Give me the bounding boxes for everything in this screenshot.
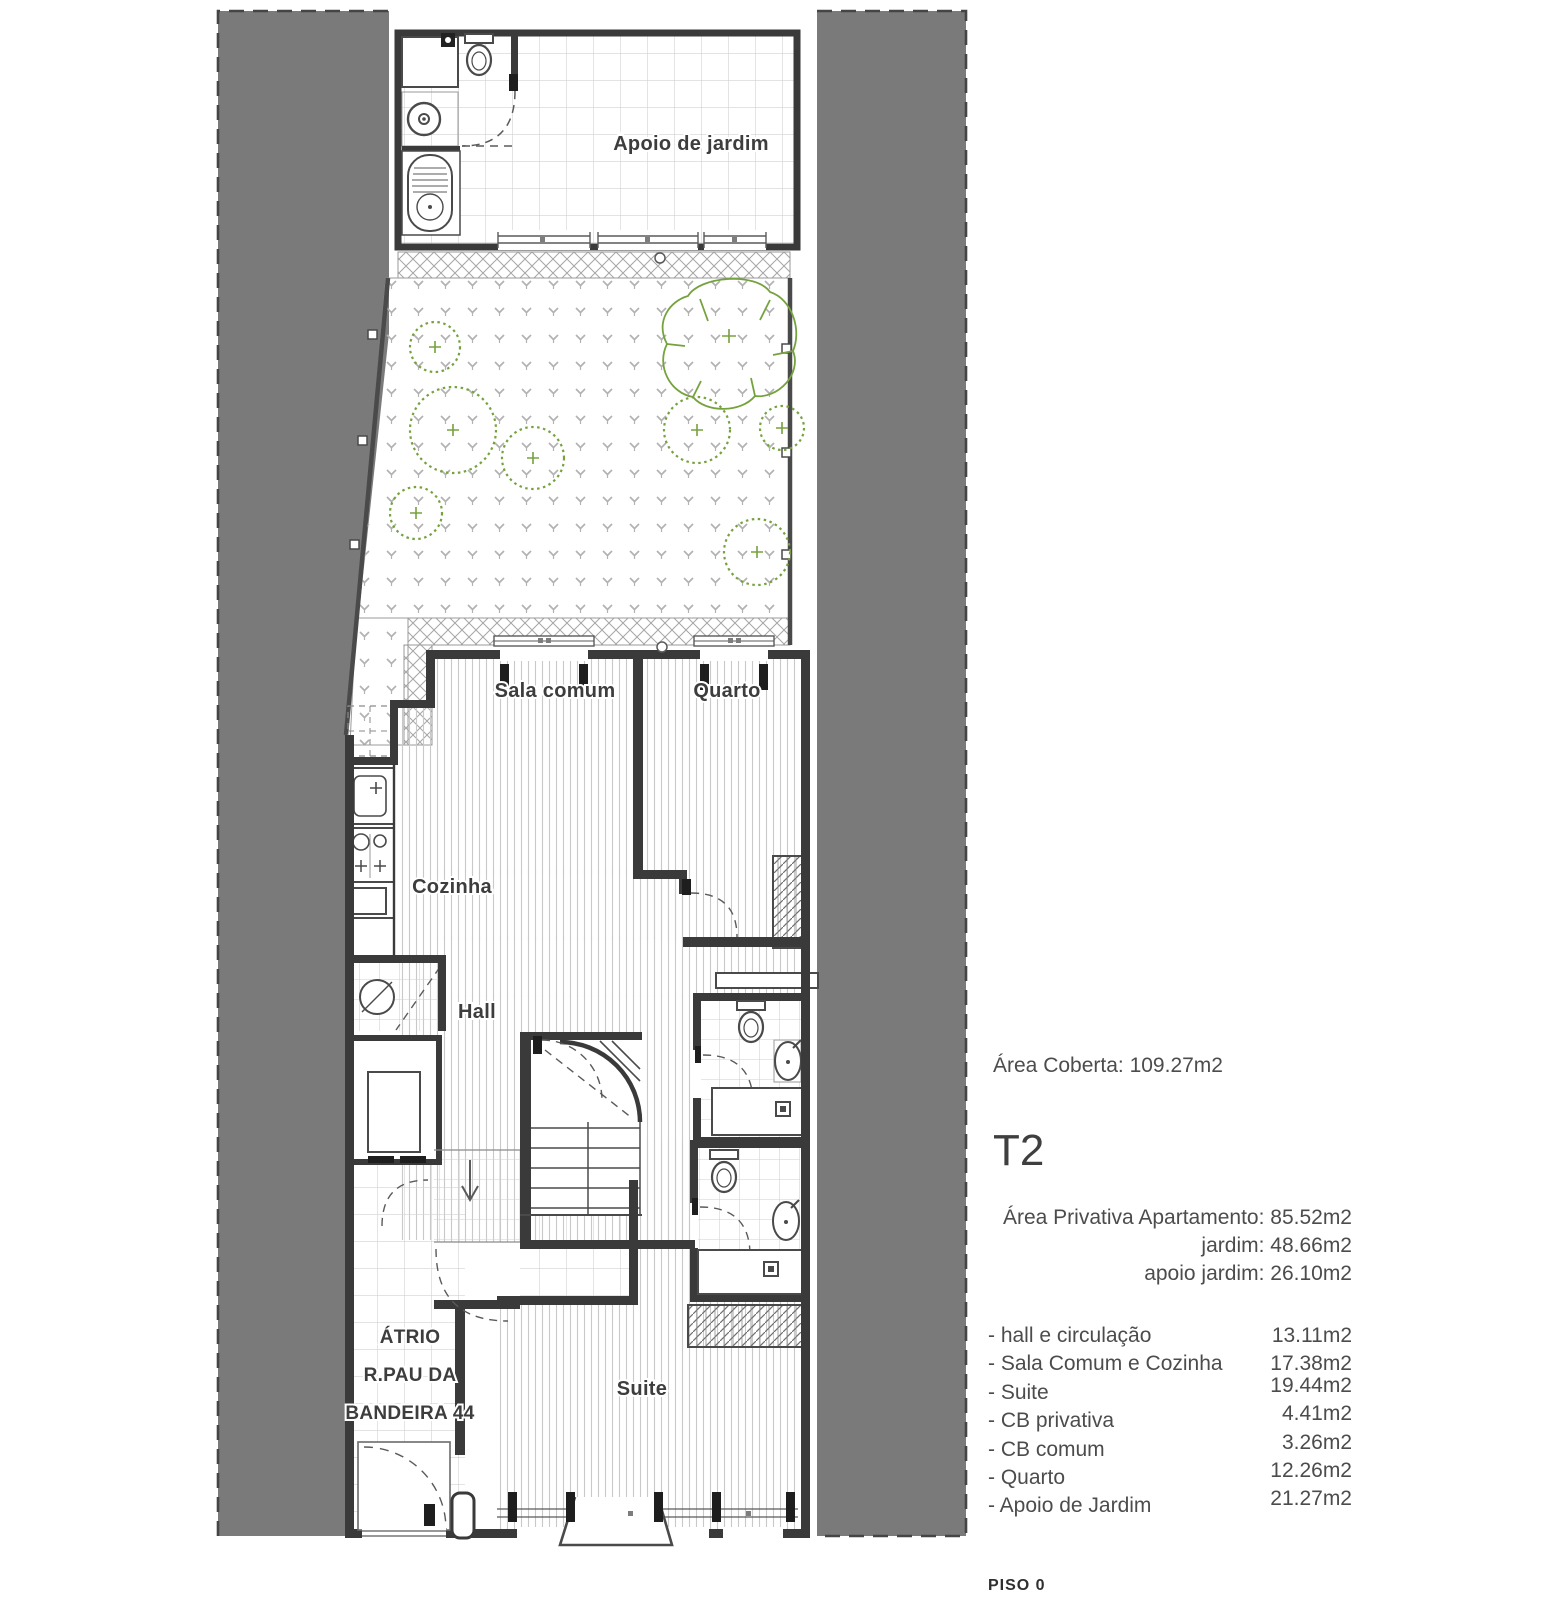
annex-windows [498,230,766,250]
vent-symbol [657,642,667,652]
room-label-hall: Hall [458,1001,496,1023]
bathroom-cb-comum [693,973,818,1145]
room-area-label: - Sala Comum e Cozinha [988,1352,1223,1376]
room-label-suite: Suite [617,1378,667,1400]
garden-annex: Apoio de jardim [398,33,797,250]
bathtub-symbol [698,1250,802,1294]
floor-label: PISO 0 [988,1577,1046,1595]
room-label-quarto: Quarto [693,680,760,702]
room-area-label: - Suite [988,1381,1049,1405]
room-label-apoio: Apoio de jardim [613,133,769,155]
staircase [520,1032,642,1242]
water-heater-icon [441,33,455,47]
private-area-line: apoio jardim: 26.10m2 [850,1260,1352,1288]
sink-symbol [774,1040,801,1082]
wardrobe-suite [688,1305,802,1347]
floor-plan-sheet: Apoio de jardim [0,0,1556,1609]
area-coberta-text: Área Coberta: 109.27m2 [993,1054,1223,1078]
room-label-sala: Sala comum [495,680,616,702]
elevator [350,1038,439,1163]
sink-symbol [773,1200,799,1240]
room-area-label: - Apoio de Jardim [988,1494,1151,1518]
kitchen-sink-symbol [348,768,394,824]
toilet-symbol [710,1150,738,1192]
wardrobe-quarto [773,856,805,948]
bathroom-cb-privativa [690,1140,802,1302]
room-area-label: - Quarto [988,1466,1065,1490]
room-areas-list: - hall e circulação 13.11m2 - Sala Comum… [988,1324,1352,1523]
toilet-symbol [465,34,493,75]
typology-title: T2 [993,1126,1044,1176]
column [452,1493,474,1538]
svg-text:R.PAU DA: R.PAU DA [364,1365,457,1386]
private-area-line: Área Privativa Apartamento: 85.52m2 [850,1204,1352,1232]
room-area-label: - CB comum [988,1438,1105,1462]
private-area-line: jardim: 48.66m2 [850,1232,1352,1260]
room-area-value: 19.44m2 [1270,1374,1352,1398]
shower-symbol [712,1088,802,1135]
room-area-value: 13.11m2 [1272,1324,1352,1348]
svg-text:BANDEIRA 44: BANDEIRA 44 [345,1403,474,1424]
toilet-symbol [737,1001,765,1042]
floor-plan-drawing: Apoio de jardim [0,0,980,1609]
right-site-band [817,11,966,1536]
private-areas-block: Área Privativa Apartamento: 85.52m2 jard… [850,1204,1352,1288]
room-area-label: - hall e circulação [988,1324,1151,1348]
room-area-label: - CB privativa [988,1409,1114,1433]
svg-text:ÁTRIO: ÁTRIO [380,1326,441,1348]
room-area-row: - Apoio de Jardim 21.27m2 [988,1494,1352,1522]
wc-nook [350,963,446,1031]
room-area-value: 21.27m2 [1270,1487,1352,1511]
bathtub-symbol [402,151,460,235]
room-area-value: 12.26m2 [1270,1459,1352,1483]
room-area-value: 4.41m2 [1282,1402,1352,1426]
stove-symbol [348,828,394,882]
room-area-value: 3.26m2 [1282,1431,1352,1455]
room-area-row: - hall e circulação 13.11m2 [988,1324,1352,1352]
room-label-cozinha: Cozinha [412,876,492,898]
room-area-value: 17.38m2 [1270,1352,1352,1376]
